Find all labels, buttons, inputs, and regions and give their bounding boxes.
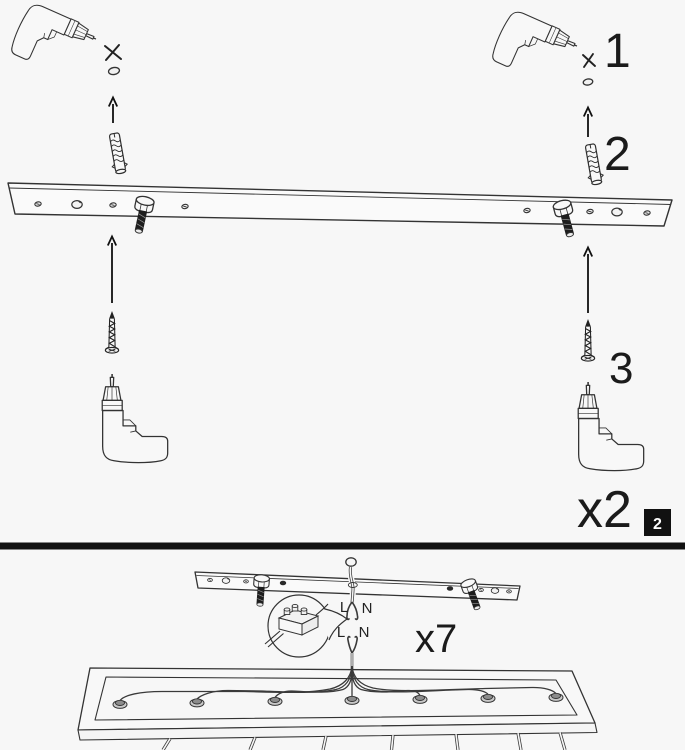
ceiling-bar <box>195 572 520 612</box>
step-badge-label: 2 <box>653 516 662 533</box>
pilot-hole-icon <box>108 67 120 76</box>
cable-gland-icon <box>481 694 495 702</box>
cable-gland-icon <box>345 696 359 704</box>
multiplier-x2-label: x2 <box>577 481 632 539</box>
bar-hole <box>34 201 41 206</box>
screw-icon <box>581 319 594 361</box>
callout-3-label: 3 <box>609 344 633 393</box>
bar-hole-large <box>612 208 622 216</box>
arrow-up-icon <box>584 248 592 314</box>
drill-icon <box>489 8 580 89</box>
supply-live-label: L <box>340 599 348 616</box>
magnifier-callout <box>265 595 347 657</box>
screw-head <box>280 581 286 586</box>
drill-icon <box>8 1 99 82</box>
cable-gland-icon <box>268 697 282 705</box>
x-mark-icon <box>583 54 595 67</box>
multiplier-x7-label: x7 <box>415 617 457 661</box>
bar-hole-large <box>222 578 229 584</box>
cable-gland-icon <box>413 695 427 703</box>
wall-anchor-icon <box>583 143 605 186</box>
bar-hole <box>181 204 188 209</box>
cable-gland-icon <box>190 699 204 707</box>
bar-hole <box>109 202 116 207</box>
cable-gland-icon <box>549 693 563 701</box>
mounting-bar <box>8 183 672 239</box>
bar-hole <box>643 210 650 215</box>
bar-hole-large <box>491 588 498 594</box>
arrow-up-icon <box>108 237 116 304</box>
bar-hole <box>507 590 512 593</box>
arrow-up-icon <box>584 108 592 138</box>
screw-icon <box>105 311 118 353</box>
fixture-neutral-label: N <box>359 624 370 641</box>
drill-icon <box>578 382 643 471</box>
bar-hole <box>523 208 530 213</box>
bar-hole <box>479 588 484 591</box>
callout-2-label: 2 <box>604 128 631 181</box>
cable-gland-icon <box>113 700 127 708</box>
bar-hole-large <box>72 201 82 209</box>
wiring-panel: L N L N x7 <box>78 558 597 750</box>
fixture-frame <box>78 668 597 740</box>
step-two-panel: 1 2 3 x2 2 <box>8 1 672 539</box>
callout-1-label: 1 <box>604 25 631 78</box>
assembly-illustration: 1 2 3 x2 2 <box>0 0 685 750</box>
bar-hole <box>586 209 593 214</box>
pilot-hole-icon <box>583 78 593 86</box>
drill-icon <box>102 374 167 463</box>
assembly-instruction-sheet: 1 2 3 x2 2 <box>0 0 685 750</box>
step-badge: 2 <box>644 509 671 536</box>
arrow-up-icon <box>109 98 117 124</box>
section-divider <box>0 543 685 550</box>
bar-hole <box>208 578 213 581</box>
wall-anchor-icon <box>107 132 129 175</box>
x-mark-icon <box>105 45 121 60</box>
screw-head <box>447 586 453 591</box>
supply-neutral-label: N <box>362 600 373 617</box>
bar-hole <box>244 580 249 583</box>
